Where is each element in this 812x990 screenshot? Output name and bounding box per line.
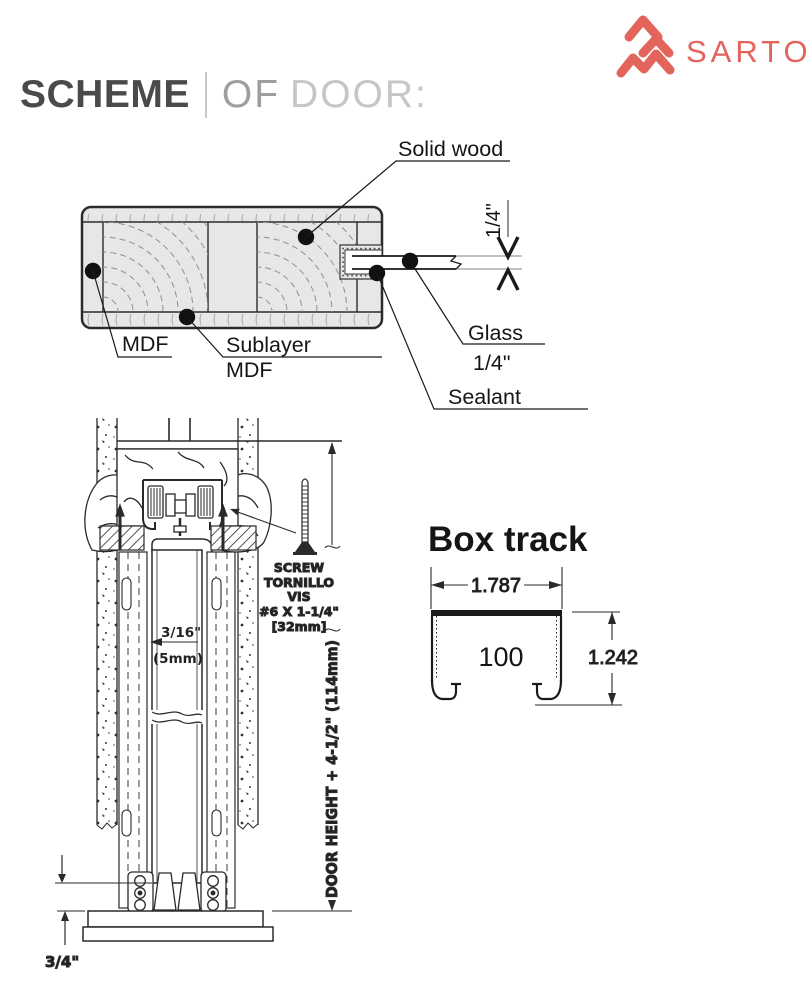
- page-title: SCHEME OF DOOR:: [20, 72, 428, 118]
- door-scheme-page: SCHEME OF DOOR: SARTO: [0, 0, 812, 990]
- door-height-dimension: DOOR HEIGHT + 4-1/2" (114mm): [272, 442, 352, 911]
- gap-dim-metric: (5mm): [153, 651, 203, 667]
- dim-break-symbol: [325, 546, 340, 548]
- screw-head: [295, 542, 315, 552]
- logo-zigzag: [621, 54, 670, 73]
- logo-chevron-top: [629, 20, 658, 37]
- sublayer-label-line2: MDF: [226, 358, 273, 382]
- sealant-label: Sealant: [448, 385, 521, 409]
- track-width-label: 1.787: [471, 575, 521, 597]
- right-wheel: [198, 486, 213, 518]
- page-title-of: OF: [222, 73, 280, 117]
- screw-note-1: SCREW: [274, 560, 324, 575]
- floor-clearance-label: 3/4": [45, 953, 79, 971]
- door-panel: [150, 550, 204, 883]
- screw-note-3: VIS: [287, 589, 310, 604]
- sarto-logo-icon: [616, 10, 676, 82]
- door-height-label: DOOR HEIGHT + 4-1/2" (114mm): [323, 640, 341, 898]
- box-track-title: Box track: [428, 520, 588, 559]
- door-cross-section-diagram: 1/4" Solid wood MDF Sublayer MDF Glass 1…: [40, 130, 620, 415]
- glass-label-line1: Glass: [468, 321, 523, 345]
- track-profile: 100: [431, 610, 562, 699]
- track-mechanism-diagram: 3/4" 3/16" (5mm): [40, 400, 370, 990]
- screw-note-4: #6 X 1-1/4": [259, 604, 339, 619]
- glass-label-line2: 1/4": [473, 351, 511, 375]
- track-inner-label: 100: [478, 642, 523, 672]
- ceiling-lines: [117, 418, 342, 449]
- left-upper-slot: [122, 578, 131, 610]
- gap-dim-label: 3/16": [161, 625, 201, 641]
- solid-wood-label: Solid wood: [398, 137, 503, 161]
- left-wheel: [148, 486, 163, 518]
- page-title-secondary: DOOR:: [290, 73, 428, 117]
- track-top-flange: [431, 610, 562, 616]
- dim-arrow-down: [498, 237, 518, 257]
- sublayer-label-line1: Sublayer: [226, 333, 311, 357]
- page-title-primary: SCHEME: [20, 73, 190, 117]
- dim-arrow-up: [498, 270, 518, 290]
- glass-thickness-label: 1/4": [483, 203, 505, 238]
- bottom-skin-texture: [85, 314, 379, 326]
- left-lower-slot: [122, 810, 131, 836]
- brand-logo: SARTO: [616, 10, 812, 82]
- track-left-lip: [432, 680, 456, 699]
- track-height-dimension: 1.242: [535, 612, 638, 705]
- floor-base: [83, 911, 273, 941]
- mdf-label: MDF: [122, 332, 169, 356]
- right-lower-slot: [212, 810, 221, 836]
- brand-name: SARTO: [686, 34, 812, 70]
- title-divider: [205, 72, 207, 118]
- glass-thickness-dimension: 1/4": [483, 200, 518, 290]
- right-upper-slot: [212, 578, 221, 610]
- top-skin-texture: [85, 210, 379, 221]
- screw-note-5: [32mm]: [272, 619, 327, 634]
- screw-note-2: TORNILLO: [264, 575, 334, 590]
- track-height-label: 1.242: [588, 647, 638, 669]
- track-width-dimension: 1.787: [431, 567, 562, 609]
- box-track-detail: Box track 1.787 100: [410, 505, 680, 720]
- track-right-lip: [537, 680, 561, 699]
- dim-break-symbol: [325, 629, 340, 631]
